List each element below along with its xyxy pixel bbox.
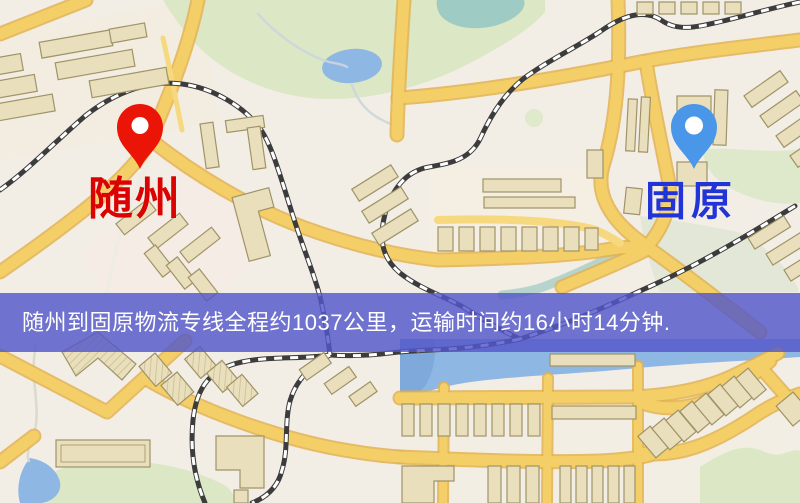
route-summary-text: 随州到固原物流专线全程约1037公里，运输时间约16小时14分钟. [0,293,800,352]
destination-label: 固原 [645,181,737,222]
origin-label: 随州 [88,176,182,221]
map-screen: 随州 固原 随州到固原物流专线全程约1037公里，运输时间约16小时14分钟. [0,0,800,503]
route-summary-banner: 随州到固原物流专线全程约1037公里，运输时间约16小时14分钟. [0,293,800,352]
map-canvas[interactable] [0,0,800,503]
